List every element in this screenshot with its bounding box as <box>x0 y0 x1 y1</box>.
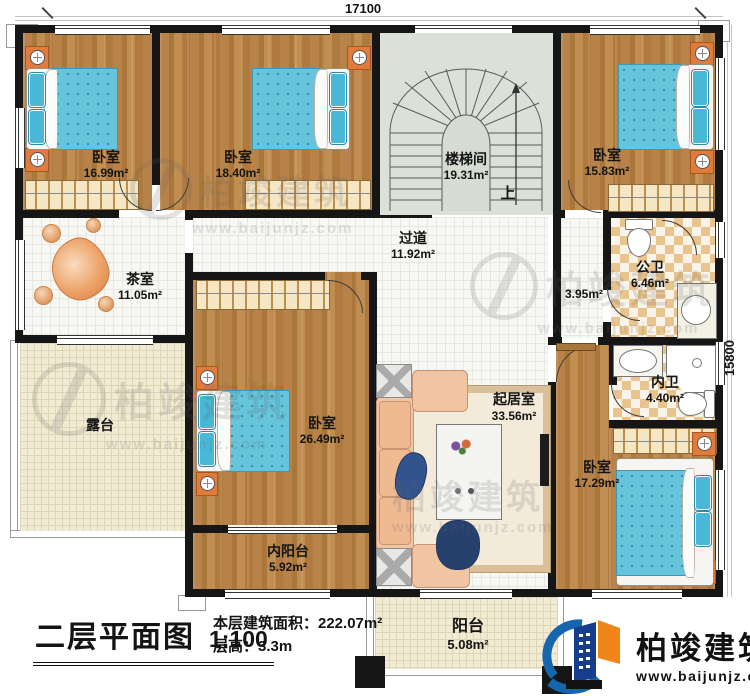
side-table <box>376 364 412 398</box>
pillow <box>695 512 711 546</box>
sink <box>619 349 657 373</box>
pillow <box>330 73 346 107</box>
room-area-stairwell: 19.31m² <box>444 169 489 182</box>
terrace-railing <box>10 340 18 538</box>
lamp-icon <box>695 154 710 169</box>
wall <box>188 210 372 218</box>
lamp-icon <box>352 50 367 65</box>
closet-floor <box>561 218 603 338</box>
bed-blanket <box>52 68 118 150</box>
nightstand <box>347 46 371 70</box>
dimension-tick <box>694 7 706 19</box>
lamp-icon <box>30 152 45 167</box>
lamp-icon <box>30 50 45 65</box>
nightstand <box>690 42 714 66</box>
armchair <box>412 370 468 412</box>
room-label-bedroom-tr: 卧室 <box>593 148 621 163</box>
wall <box>361 272 371 280</box>
window <box>715 342 725 385</box>
pebble <box>98 296 114 312</box>
bed-blanket <box>618 64 682 150</box>
nightstand <box>196 366 218 390</box>
bed-sheet <box>682 468 695 578</box>
wardrobe <box>608 184 714 212</box>
room-area-bedroom-br: 17.29m² <box>575 477 620 490</box>
wall <box>372 33 380 218</box>
bed-blanket <box>226 390 290 472</box>
pillow <box>29 73 45 107</box>
inner-balcony-opening <box>228 527 337 534</box>
room-label-bedroom-tl: 卧室 <box>92 150 120 165</box>
room-area-inner-bath: 4.40m² <box>646 392 684 405</box>
exterior-step <box>178 595 206 611</box>
brand-text: 柏竣建筑 www.baijunjz.com <box>636 623 750 684</box>
balcony-railing <box>366 668 564 676</box>
dimension-tick <box>41 7 53 19</box>
brand-logo-icon <box>540 612 636 694</box>
wall <box>23 210 119 218</box>
dimension-line <box>727 25 728 597</box>
room-area-bedroom-c: 26.49m² <box>300 433 345 446</box>
wall <box>152 33 160 185</box>
bed-sheet <box>217 391 231 471</box>
dimension-line <box>15 20 723 21</box>
pillow <box>29 110 45 144</box>
pebble <box>42 224 61 243</box>
balcony-door <box>420 589 512 599</box>
room-label-hallway: 过道 <box>399 231 427 246</box>
room-label-bedroom-br: 卧室 <box>583 460 611 475</box>
room-area-inner-balcony: 5.92m² <box>269 561 307 574</box>
pebble <box>86 218 101 233</box>
lamp-icon <box>200 370 215 385</box>
room-area-balcony: 5.08m² <box>447 638 488 652</box>
room-label-bedroom-c: 卧室 <box>308 416 336 431</box>
wall <box>193 272 325 280</box>
room-area-bedroom-tr: 15.83m² <box>585 165 630 178</box>
wall <box>553 33 561 210</box>
room-label-balcony: 阳台 <box>452 618 484 636</box>
window <box>15 240 25 330</box>
tv <box>540 434 549 486</box>
nightstand <box>690 150 714 174</box>
wall <box>185 210 193 220</box>
wall <box>553 210 561 338</box>
terrace-floor <box>20 343 185 531</box>
floor-height-text: 层高：3.3m <box>213 635 382 658</box>
room-label-public-bath: 公卫 <box>636 260 664 275</box>
room-area-living: 33.56m² <box>492 410 537 423</box>
room-area-closet: 3.95m² <box>565 288 603 301</box>
nightstand <box>25 46 49 70</box>
plan-info: 本层建筑面积：222.07m² 层高：3.3m <box>213 612 382 659</box>
wall <box>185 253 193 597</box>
window <box>715 58 725 150</box>
pillow <box>330 110 346 144</box>
pebble <box>34 286 53 305</box>
lamp-icon <box>695 46 710 61</box>
room-area-bedroom-tm: 18.40m² <box>216 167 261 180</box>
pillow <box>199 432 215 466</box>
balcony-post <box>355 656 385 688</box>
stairs-up-label: 上 <box>500 186 515 203</box>
table-decor <box>468 488 474 494</box>
brand-name: 柏竣建筑 <box>636 623 750 668</box>
wall <box>185 525 228 533</box>
sofa-cushion <box>379 497 411 545</box>
sofa-cushion <box>379 401 411 449</box>
window <box>225 589 330 599</box>
person-figure <box>436 520 480 570</box>
room-label-bedroom-tm: 卧室 <box>224 150 252 165</box>
door-leaf <box>556 343 596 351</box>
pillow <box>692 108 708 144</box>
room-label-inner-balcony: 内阳台 <box>267 544 309 559</box>
side-table <box>376 548 412 586</box>
nightstand <box>692 432 716 456</box>
pillow <box>695 476 711 510</box>
terrace-railing <box>10 530 192 538</box>
bed-sheet <box>314 69 328 149</box>
window <box>222 25 330 35</box>
nightstand <box>25 148 49 172</box>
nightstand <box>196 472 218 496</box>
bed-blanket <box>252 68 320 150</box>
window <box>55 25 150 35</box>
floor-plan: 17100 15800 <box>0 0 750 696</box>
room-area-public-bath: 6.46m² <box>631 277 669 290</box>
bed-blanket <box>616 470 688 576</box>
window <box>15 108 25 168</box>
wall <box>603 322 611 338</box>
bed-sheet <box>676 65 690 149</box>
table-decor <box>455 488 461 494</box>
brand-logo: 柏竣建筑 www.baijunjz.com <box>540 612 750 694</box>
brand-website: www.baijunjz.com <box>636 668 750 684</box>
wardrobe <box>245 180 371 210</box>
window <box>590 25 700 35</box>
table-flowers <box>448 436 474 456</box>
room-label-inner-bath: 内卫 <box>651 375 679 390</box>
wall <box>603 218 611 290</box>
room-label-tea-room: 茶室 <box>126 272 154 287</box>
window <box>592 589 682 599</box>
room-area-hallway: 11.92m² <box>391 248 435 261</box>
pillow <box>692 70 708 106</box>
wardrobe <box>196 280 330 310</box>
room-label-stairwell: 楼梯间 <box>445 152 487 167</box>
wall <box>609 420 715 428</box>
stairs-graphic <box>380 33 553 215</box>
window <box>715 222 725 258</box>
room-label-terrace: 露台 <box>86 418 114 433</box>
lamp-icon <box>697 436 712 451</box>
wall <box>337 525 371 533</box>
bed-sheet <box>44 69 58 149</box>
dimension-line <box>731 25 732 597</box>
plan-title: 二层平面图 <box>35 612 195 656</box>
terrace-door <box>57 335 153 345</box>
floor-area-text: 本层建筑面积：222.07m² <box>213 612 382 635</box>
dimension-line <box>15 16 723 17</box>
dimension-top: 17100 <box>345 1 381 16</box>
room-area-bedroom-tl: 16.99m² <box>84 167 129 180</box>
pillow <box>199 395 215 429</box>
sink <box>681 295 711 325</box>
room-label-living: 起居室 <box>493 392 535 407</box>
lamp-icon <box>200 476 215 491</box>
window <box>715 470 725 570</box>
shower-drain <box>692 358 702 368</box>
room-area-tea-room: 11.05m² <box>118 289 162 302</box>
